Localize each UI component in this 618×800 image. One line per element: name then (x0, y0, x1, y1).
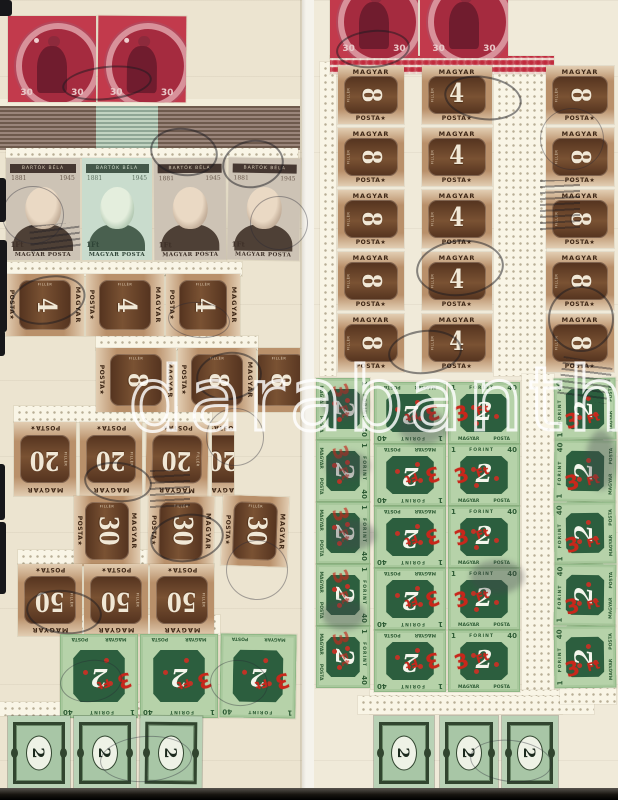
denomination: 1Ft (86, 240, 99, 249)
posta-text: POSTA★ (80, 424, 142, 431)
numeral-shield: FILLÉR 8 (344, 76, 398, 114)
currency-label: FORINT (362, 456, 367, 481)
overprint-value: 3 (451, 524, 472, 551)
overprint-value: 3 (562, 531, 582, 558)
postage-due-stamp: MAGYAR FILLÉR 4 POSTA★ (422, 190, 492, 248)
postage-due-stamp: MAGYAR FILLÉR 4 POSTA★ (166, 274, 240, 336)
postage-due-stamp: MAGYAR FILLÉR 4 POSTA★ (422, 66, 492, 124)
country-text: MAGYAR (422, 192, 492, 200)
numeral-shield: FILLÉR 8 (552, 200, 608, 238)
red-charity-stamp: 30 30 (98, 16, 187, 103)
value-small: 1 (451, 446, 456, 454)
flower-dot-icon (242, 670, 247, 675)
forint-overprint-stamp: 1 FORINT 40 2 MAGYAR POSTA 3 Ft (316, 564, 370, 626)
country-text: MAGYAR (74, 274, 82, 336)
numeral-shield: FILLÉR 8 (344, 200, 398, 238)
forint-overprint-stamp: 1 FORINT 40 2 MAGYAR POSTA 3 Ft (374, 382, 446, 444)
denomination: 1Ft (232, 239, 245, 248)
year-left: 1881 (159, 175, 174, 182)
stamp-title: BARTÓK BÉLA (232, 164, 297, 174)
filler-label: FILLÉR (346, 88, 350, 103)
selvage-band-brown (158, 106, 300, 150)
value-large: 40 (507, 508, 517, 516)
country-text: MAGYAR (609, 597, 614, 618)
photo-edge-mark (0, 178, 6, 222)
denomination: 30 (432, 44, 445, 54)
denomination: 30 (393, 44, 406, 54)
denomination: 20 (24, 447, 66, 473)
denomination: 30 (483, 44, 496, 54)
green-stamp-design: 1 FORINT 40 2 MAGYAR POSTA 3 Ft (554, 626, 617, 689)
posta-text: POSTA (609, 572, 614, 589)
value-row: 1 FORINT 40 (451, 508, 517, 516)
country-text: MAGYAR (415, 384, 436, 389)
numeral-oval: 2 (92, 736, 118, 771)
forint-overprint-stamp: 1 FORINT 40 2 MAGYAR POSTA 3 Ft (554, 626, 617, 689)
value-large: 40 (63, 708, 73, 716)
posta-text: POSTA★ (422, 363, 492, 370)
posta-text: POSTA (493, 623, 510, 628)
country-row: MAGYAR POSTA (451, 499, 517, 504)
denomination: 8 (267, 358, 293, 401)
value-small: 1 (451, 508, 456, 516)
stamp-years: 1881 1945 (159, 175, 221, 183)
flower-dot-icon (494, 414, 499, 419)
country-row: MAGYAR POSTA (609, 567, 615, 623)
country-row: MAGYAR POSTA (609, 443, 615, 499)
red-stamp-design: 30 30 (98, 18, 187, 103)
country-text: MAGYAR (609, 411, 614, 432)
posta-text: POSTA★ (84, 566, 148, 573)
postage-due-stamp: MAGYAR FILLÉR 30 POSTA★ (74, 496, 140, 566)
postage-due-design: MAGYAR FILLÉR 8 POSTA★ (546, 252, 614, 310)
denomination: 50 (160, 588, 203, 614)
year-right: 1945 (132, 175, 147, 182)
country-text: MAGYAR (318, 572, 323, 593)
posta-text: POSTA★ (76, 496, 83, 566)
numeral-oval: 2 (26, 736, 52, 771)
green-stamp-design: 1 FORINT 40 2 MAGYAR POSTA 3 Ft (374, 630, 446, 692)
numeral-shield: FILLÉR 8 (344, 138, 398, 176)
overprint-value: 3 (422, 461, 443, 488)
flower-dot-icon (263, 658, 268, 663)
flower-dot-icon (395, 593, 400, 598)
country-row: MAGYAR POSTA (318, 505, 323, 561)
posta-text: POSTA (384, 446, 401, 451)
country-text: MAGYAR (264, 636, 285, 641)
value-large: 40 (360, 613, 368, 623)
flower-dot-icon (586, 458, 591, 463)
value-small: 1 (438, 558, 443, 566)
posta-text: POSTA★ (180, 348, 187, 412)
country-row: MAGYAR POSTA (318, 443, 323, 499)
denomination: 30 (169, 507, 196, 555)
overprint-value: 3 (272, 668, 292, 695)
filler-label: FILLÉR (554, 336, 558, 351)
frame-ornament (60, 748, 67, 758)
country-text: MAGYAR (130, 496, 138, 566)
stamp-years: 1881 1945 (234, 174, 296, 182)
photo-edge-mark (0, 240, 7, 332)
currency-label: FORINT (89, 710, 114, 715)
postage-due-design: MAGYAR FILLÉR 30 POSTA★ (147, 495, 214, 566)
overprint-value: 3 (327, 566, 354, 587)
denomination: 2 (394, 747, 413, 758)
country-text: MAGYAR (458, 437, 479, 442)
stamp-frame: 2 (13, 722, 65, 784)
country-row: MAGYAR POSTA (143, 636, 215, 641)
denomination: 4 (433, 81, 480, 107)
year-left: 1881 (87, 175, 102, 182)
overprint-value: 3 (451, 586, 472, 613)
value-row: 1 FORINT 40 (451, 384, 517, 392)
value-small: 1 (360, 567, 368, 572)
value-small: 1 (556, 618, 564, 623)
green-stamp-design: 1 FORINT 40 2 MAGYAR POSTA 3 Ft (448, 568, 520, 630)
value-row: 1 FORINT 40 (360, 505, 368, 561)
numeral-shield: FILLÉR 4 (428, 262, 485, 300)
denomination: 2 (29, 747, 48, 758)
numeral-oval: 2 (158, 735, 184, 770)
value-small: 1 (360, 443, 368, 448)
postage-due-stamp: MAGYAR FILLÉR 4 POSTA★ (422, 314, 492, 372)
portrait-head (100, 187, 134, 230)
frame-ornament (443, 748, 450, 758)
country-text: MAGYAR (415, 508, 436, 513)
country-text: MAGYAR (105, 636, 126, 641)
denomination: 2 (95, 747, 114, 758)
postage-due-stamp: MAGYAR FILLÉR 30 POSTA★ (221, 495, 289, 567)
denomination: 2 (520, 747, 539, 758)
forint-overprint-stamp: 1 FORINT 40 2 MAGYAR POSTA 3 Ft (554, 440, 617, 503)
posta-text: POSTA (493, 437, 510, 442)
numeral-shield: FILLÉR 8 (110, 354, 163, 407)
numeral-shield: FILLÉR 20 (20, 435, 71, 484)
country-row: MAGYAR POSTA (318, 381, 323, 437)
postage-due-design: MAGYAR FILLÉR 4 POSTA★ (166, 274, 240, 336)
postage-due-design: MAGYAR FILLÉR 8 POSTA★ (338, 252, 404, 310)
denomination: 50 (94, 588, 137, 614)
green-stamp-design: 1 FORINT 40 2 MAGYAR POSTA 3 Ft (374, 382, 446, 444)
numeral-shield: FILLÉR 50 (90, 576, 143, 624)
posta-text: POSTA★ (338, 239, 404, 246)
forint-overprint-stamp: 1 FORINT 40 2 MAGYAR POSTA 3 Ft (554, 502, 617, 565)
value-large: 40 (556, 567, 564, 577)
denomination: 30 (342, 44, 355, 54)
denomination: 30 (95, 507, 121, 554)
denomination: 8 (567, 134, 593, 180)
posta-text: POSTA★ (150, 566, 214, 573)
postage-due-stamp: MAGYAR FILLÉR 4 POSTA★ (422, 252, 492, 310)
overprint-value: 3 (327, 380, 354, 401)
figure-body (449, 2, 479, 49)
postage-due-design: MAGYAR FILLÉR 50 POSTA★ (150, 564, 214, 636)
numeral-shield: FILLÉR 8 (552, 324, 608, 362)
forint-overprint-stamp: 1 FORINT 40 2 MAGYAR POSTA 3 Ft (374, 444, 446, 506)
posta-text: POSTA★ (338, 363, 404, 370)
green-stamp-design: 1 FORINT 40 2 MAGYAR POSTA 3 Ft (316, 564, 370, 626)
postage-due-design: MAGYAR FILLÉR 4 POSTA★ (422, 190, 492, 248)
overprint-value: 3 (562, 469, 581, 496)
posta-text: POSTA (493, 561, 510, 566)
postage-due-stamp: MAGYAR FILLÉR 4 POSTA★ (422, 128, 492, 186)
value-large: 40 (507, 384, 517, 392)
year-left: 1881 (234, 174, 249, 181)
posta-text: POSTA (384, 632, 401, 637)
country-text: MAGYAR (422, 130, 492, 138)
value-small: 1 (556, 494, 564, 499)
value-row: 1 FORINT 40 (222, 707, 292, 716)
numeral-shield: FILLÉR 50 (156, 576, 209, 624)
value-large: 40 (556, 505, 564, 515)
frame-ornament (424, 748, 431, 758)
flower-dot-icon (494, 662, 499, 667)
postage-due-stamp: MAGYAR FILLÉR 20 POSTA★ (14, 422, 76, 496)
country-text: MAGYAR (203, 496, 212, 566)
posta-text: POSTA★ (168, 274, 175, 336)
posta-text: POSTA (384, 508, 401, 513)
value-row: 1 FORINT 40 (451, 632, 517, 640)
forint-overprint-stamp: 1 FORINT 40 2 MAGYAR POSTA 3 Ft (316, 440, 370, 502)
filler-label: FILLÉR (346, 212, 350, 227)
flower-dot-icon (586, 644, 591, 649)
stamp-years: 1881 1945 (87, 175, 147, 182)
overprint-value: 3 (422, 523, 443, 550)
numeral-oval: 2 (456, 736, 482, 771)
value-small: 1 (360, 381, 368, 386)
postage-due-design: MAGYAR FILLÉR 8 POSTA★ (338, 190, 404, 248)
green-stamp-design: 1 FORINT 40 2 MAGYAR POSTA 3 Ft (448, 506, 520, 568)
value-row: 1 FORINT 40 (377, 682, 443, 690)
denomination: 8 (358, 73, 384, 117)
overprint-unit: Ft (404, 594, 420, 610)
green-stamp-design: 1 FORINT 40 2 MAGYAR POSTA 3 Ft (554, 502, 617, 565)
value-large: 40 (360, 551, 368, 561)
value-small: 1 (451, 384, 456, 392)
postage-due-design: MAGYAR FILLÉR 30 POSTA★ (74, 496, 140, 566)
numeral-shield: FILLÉR 8 (191, 354, 243, 407)
country-row: MAGYAR POSTA (224, 635, 294, 641)
postage-due-stamp: MAGYAR FILLÉR 50 POSTA★ (84, 564, 148, 636)
figure-body (359, 2, 389, 49)
portrait-head (173, 186, 208, 229)
stamp-frame: 2 (145, 722, 198, 785)
year-right: 1945 (60, 175, 75, 182)
posta-text: POSTA (384, 570, 401, 575)
value-large: 40 (360, 489, 368, 499)
denomination: 4 (113, 284, 139, 326)
country-text: MAGYAR (14, 486, 76, 494)
frame-ornament (192, 748, 199, 758)
numeral-shield: FILLÉR 8 (344, 324, 398, 362)
green-stamp-design: 1 FORINT 40 2 MAGYAR POSTA 3 Ft (60, 634, 138, 718)
sheet-selvage (320, 62, 336, 376)
country-text: MAGYAR (422, 254, 492, 262)
overprint-value: 3 (451, 462, 472, 489)
country-text: MAGYAR (422, 316, 492, 324)
postage-due-design: MAGYAR FILLÉR 4 POSTA★ (6, 274, 84, 336)
postage-due-stamp: MAGYAR FILLÉR 8 POSTA★ (338, 252, 404, 310)
posta-text: POSTA★ (546, 177, 614, 184)
denomination: 8 (358, 321, 384, 365)
currency-label: FORINT (362, 518, 367, 543)
currency-label: FORINT (400, 498, 425, 503)
country-row: MAGYAR POSTA (451, 437, 517, 442)
postage-due-stamp: MAGYAR FILLÉR 8 POSTA★ (338, 128, 404, 186)
country-row: MAGYAR POSTA (451, 685, 517, 690)
numeral-shield: FILLÉR 20 (212, 435, 234, 484)
photo-bottom-edge (0, 788, 618, 800)
overprint-value: 3 (114, 667, 135, 694)
flower-dot-icon (586, 582, 591, 587)
overprint-value: 3 (327, 442, 354, 463)
photo-edge-mark (0, 522, 6, 594)
denomination: 4 (433, 267, 480, 293)
stamp-frame: 2 (507, 722, 553, 784)
postage-due-stamp: MAGYAR FILLÉR 8 POSTA★ (546, 66, 614, 124)
green-stamp-design: 1 FORINT 40 2 MAGYAR POSTA 3 Ft (554, 440, 617, 503)
postage-due-design: MAGYAR FILLÉR 50 POSTA★ (84, 564, 148, 636)
denomination: 1Ft (159, 240, 172, 249)
currency-label: FORINT (400, 560, 425, 565)
postage-due-design: MAGYAR FILLÉR 8 POSTA★ (546, 128, 614, 186)
country-row: MAGYAR POSTA (318, 629, 323, 685)
overprint-value: 3 (327, 504, 354, 525)
forint-overprint-stamp: 1 FORINT 40 2 MAGYAR POSTA 3 Ft (374, 568, 446, 630)
value-small: 1 (438, 496, 443, 504)
postage-due-design: MAGYAR FILLÉR 4 POSTA★ (86, 274, 164, 336)
flower-dot-icon (395, 407, 400, 412)
bartok-memorial-stamp: BARTÓK BÉLA 1881 1945 1Ft MAGYAR POSTA (6, 158, 80, 260)
numeral-2-stamp: 2 (502, 716, 558, 790)
green-stamp-design: 1 FORINT 40 2 MAGYAR POSTA 3 Ft (316, 502, 370, 564)
denomination: 8 (567, 72, 593, 118)
postage-due-design: MAGYAR FILLÉR 8 POSTA★ (338, 314, 404, 372)
value-row: 1 FORINT 40 (451, 446, 517, 454)
value-large: 40 (556, 381, 564, 391)
country-text: MAGYAR (277, 497, 287, 567)
posta-text: POSTA (318, 416, 323, 433)
flower-dot-icon (494, 538, 499, 543)
forint-overprint-stamp: 1 FORINT 40 2 MAGYAR POSTA 3 Ft (316, 502, 370, 564)
country-row: MAGYAR POSTA (318, 567, 323, 623)
posta-text: POSTA★ (14, 424, 76, 431)
forint-overprint-stamp: 1 FORINT 40 2 MAGYAR POSTA 3 Ft (316, 626, 370, 688)
country-text: MAGYAR (145, 485, 207, 494)
denomination: 4 (33, 284, 59, 326)
value-large: 40 (556, 629, 564, 639)
denomination: 2 (459, 747, 478, 758)
denomination: 2 (161, 747, 180, 758)
value-small: 1 (438, 434, 443, 442)
value-large: 40 (360, 675, 368, 685)
country-text: MAGYAR (84, 626, 148, 634)
numeral-shield: FILLÉR 8 (258, 354, 300, 407)
green-stamp-design: 1 FORINT 40 2 MAGYAR POSTA 3 Ft (374, 444, 446, 506)
portrait-head (25, 187, 61, 230)
posta-text: POSTA (72, 636, 89, 641)
posta-text: POSTA★ (88, 274, 95, 336)
postage-due-design: MAGYAR FILLÉR 50 POSTA★ (18, 564, 82, 636)
posta-text: POSTA (152, 636, 169, 641)
posta-text: POSTA (232, 636, 249, 641)
country-text: MAGYAR (230, 274, 238, 336)
country-text: MAGYAR (458, 623, 479, 628)
value-small: 1 (360, 629, 368, 634)
country-row: MAGYAR POSTA (377, 446, 443, 451)
postage-due-design: MAGYAR FILLÉR 4 POSTA★ (422, 314, 492, 372)
overprint-unit: Ft (404, 408, 420, 424)
value-row: 1 FORINT 40 (360, 443, 368, 499)
numeral-shield: FILLÉR 4 (428, 324, 485, 362)
forint-overprint-stamp: 1 FORINT 40 2 MAGYAR POSTA 3 Ft (316, 378, 370, 440)
denomination: 8 (358, 135, 384, 179)
posta-text: POSTA★ (422, 177, 492, 184)
posta-text: POSTA★ (338, 301, 404, 308)
overprint-value: 3 (451, 648, 472, 675)
country-row: MAGYAR POSTA (451, 623, 517, 628)
red-charity-stamp: 30 30 (330, 0, 418, 58)
forint-overprint-stamp: 1 FORINT 40 2 MAGYAR POSTA 3 Ft (448, 630, 520, 692)
overprint-unit: Ft (253, 676, 269, 692)
numeral-shield: FILLÉR 8 (552, 76, 608, 114)
frame-ornament (377, 748, 384, 758)
posta-text: POSTA (609, 448, 614, 465)
denomination: 30 (242, 507, 270, 555)
numeral-oval: 2 (517, 736, 543, 771)
value-small: 1 (451, 570, 456, 578)
bartok-memorial-stamp: BARTÓK BÉLA 1881 1945 1Ft MAGYAR POSTA (227, 157, 301, 260)
numeral-shield: FILLÉR 4 (428, 200, 485, 238)
flower-dot-icon (184, 658, 189, 663)
green-stamp-design: 1 FORINT 40 2 MAGYAR POSTA 3 Ft (448, 444, 520, 506)
numeral-shield: FILLÉR 8 (344, 262, 398, 300)
numeral-shield: FILLÉR 30 (159, 502, 204, 560)
value-row: 1 FORINT 40 (377, 434, 443, 442)
currency-label: FORINT (247, 709, 272, 714)
stamp-title: BARTÓK BÉLA (10, 164, 77, 173)
country-text: MAGYAR (609, 473, 614, 494)
value-row: 1 FORINT 40 (360, 381, 368, 437)
currency-label: FORINT (469, 448, 494, 453)
postage-due-stamp: MAGYAR FILLÉR 8 POSTA★ (338, 314, 404, 372)
currency-label: FORINT (469, 510, 494, 515)
posta-text: POSTA★ (546, 301, 614, 308)
currency-label: FORINT (400, 622, 425, 627)
flower-dot-icon (163, 670, 168, 675)
value-large: 40 (377, 620, 387, 628)
forint-overprint-stamp: 1 FORINT 40 2 MAGYAR POSTA 3 Ft (374, 506, 446, 568)
denomination: 8 (205, 358, 231, 401)
numeral-shield: FILLÉR 4 (428, 76, 485, 114)
country-text: MAGYAR (212, 486, 234, 494)
country-text: MAGYAR POSTA (6, 252, 80, 258)
forint-overprint-stamp: 1 FORINT 40 2 MAGYAR POSTA 3 Ft (448, 444, 520, 506)
denomination: 20 (212, 447, 234, 473)
frame-ornament (143, 748, 150, 758)
year-right: 1945 (280, 175, 295, 182)
postage-due-stamp: MAGYAR FILLÉR 8 POSTA★ (546, 128, 614, 186)
currency-label: FORINT (362, 580, 367, 605)
value-large: 40 (507, 570, 517, 578)
country-row: MAGYAR POSTA (377, 570, 443, 575)
country-text: MAGYAR (458, 685, 479, 690)
bartok-memorial-stamp: BARTÓK BÉLA 1881 1945 1Ft MAGYAR POSTA (154, 158, 227, 261)
numeral-shield: FILLÉR 50 (24, 576, 77, 624)
denomination: 8 (567, 258, 593, 304)
numeral-2-stamp: 2 (140, 716, 203, 791)
red-stamp-design: 30 30 (8, 18, 96, 102)
